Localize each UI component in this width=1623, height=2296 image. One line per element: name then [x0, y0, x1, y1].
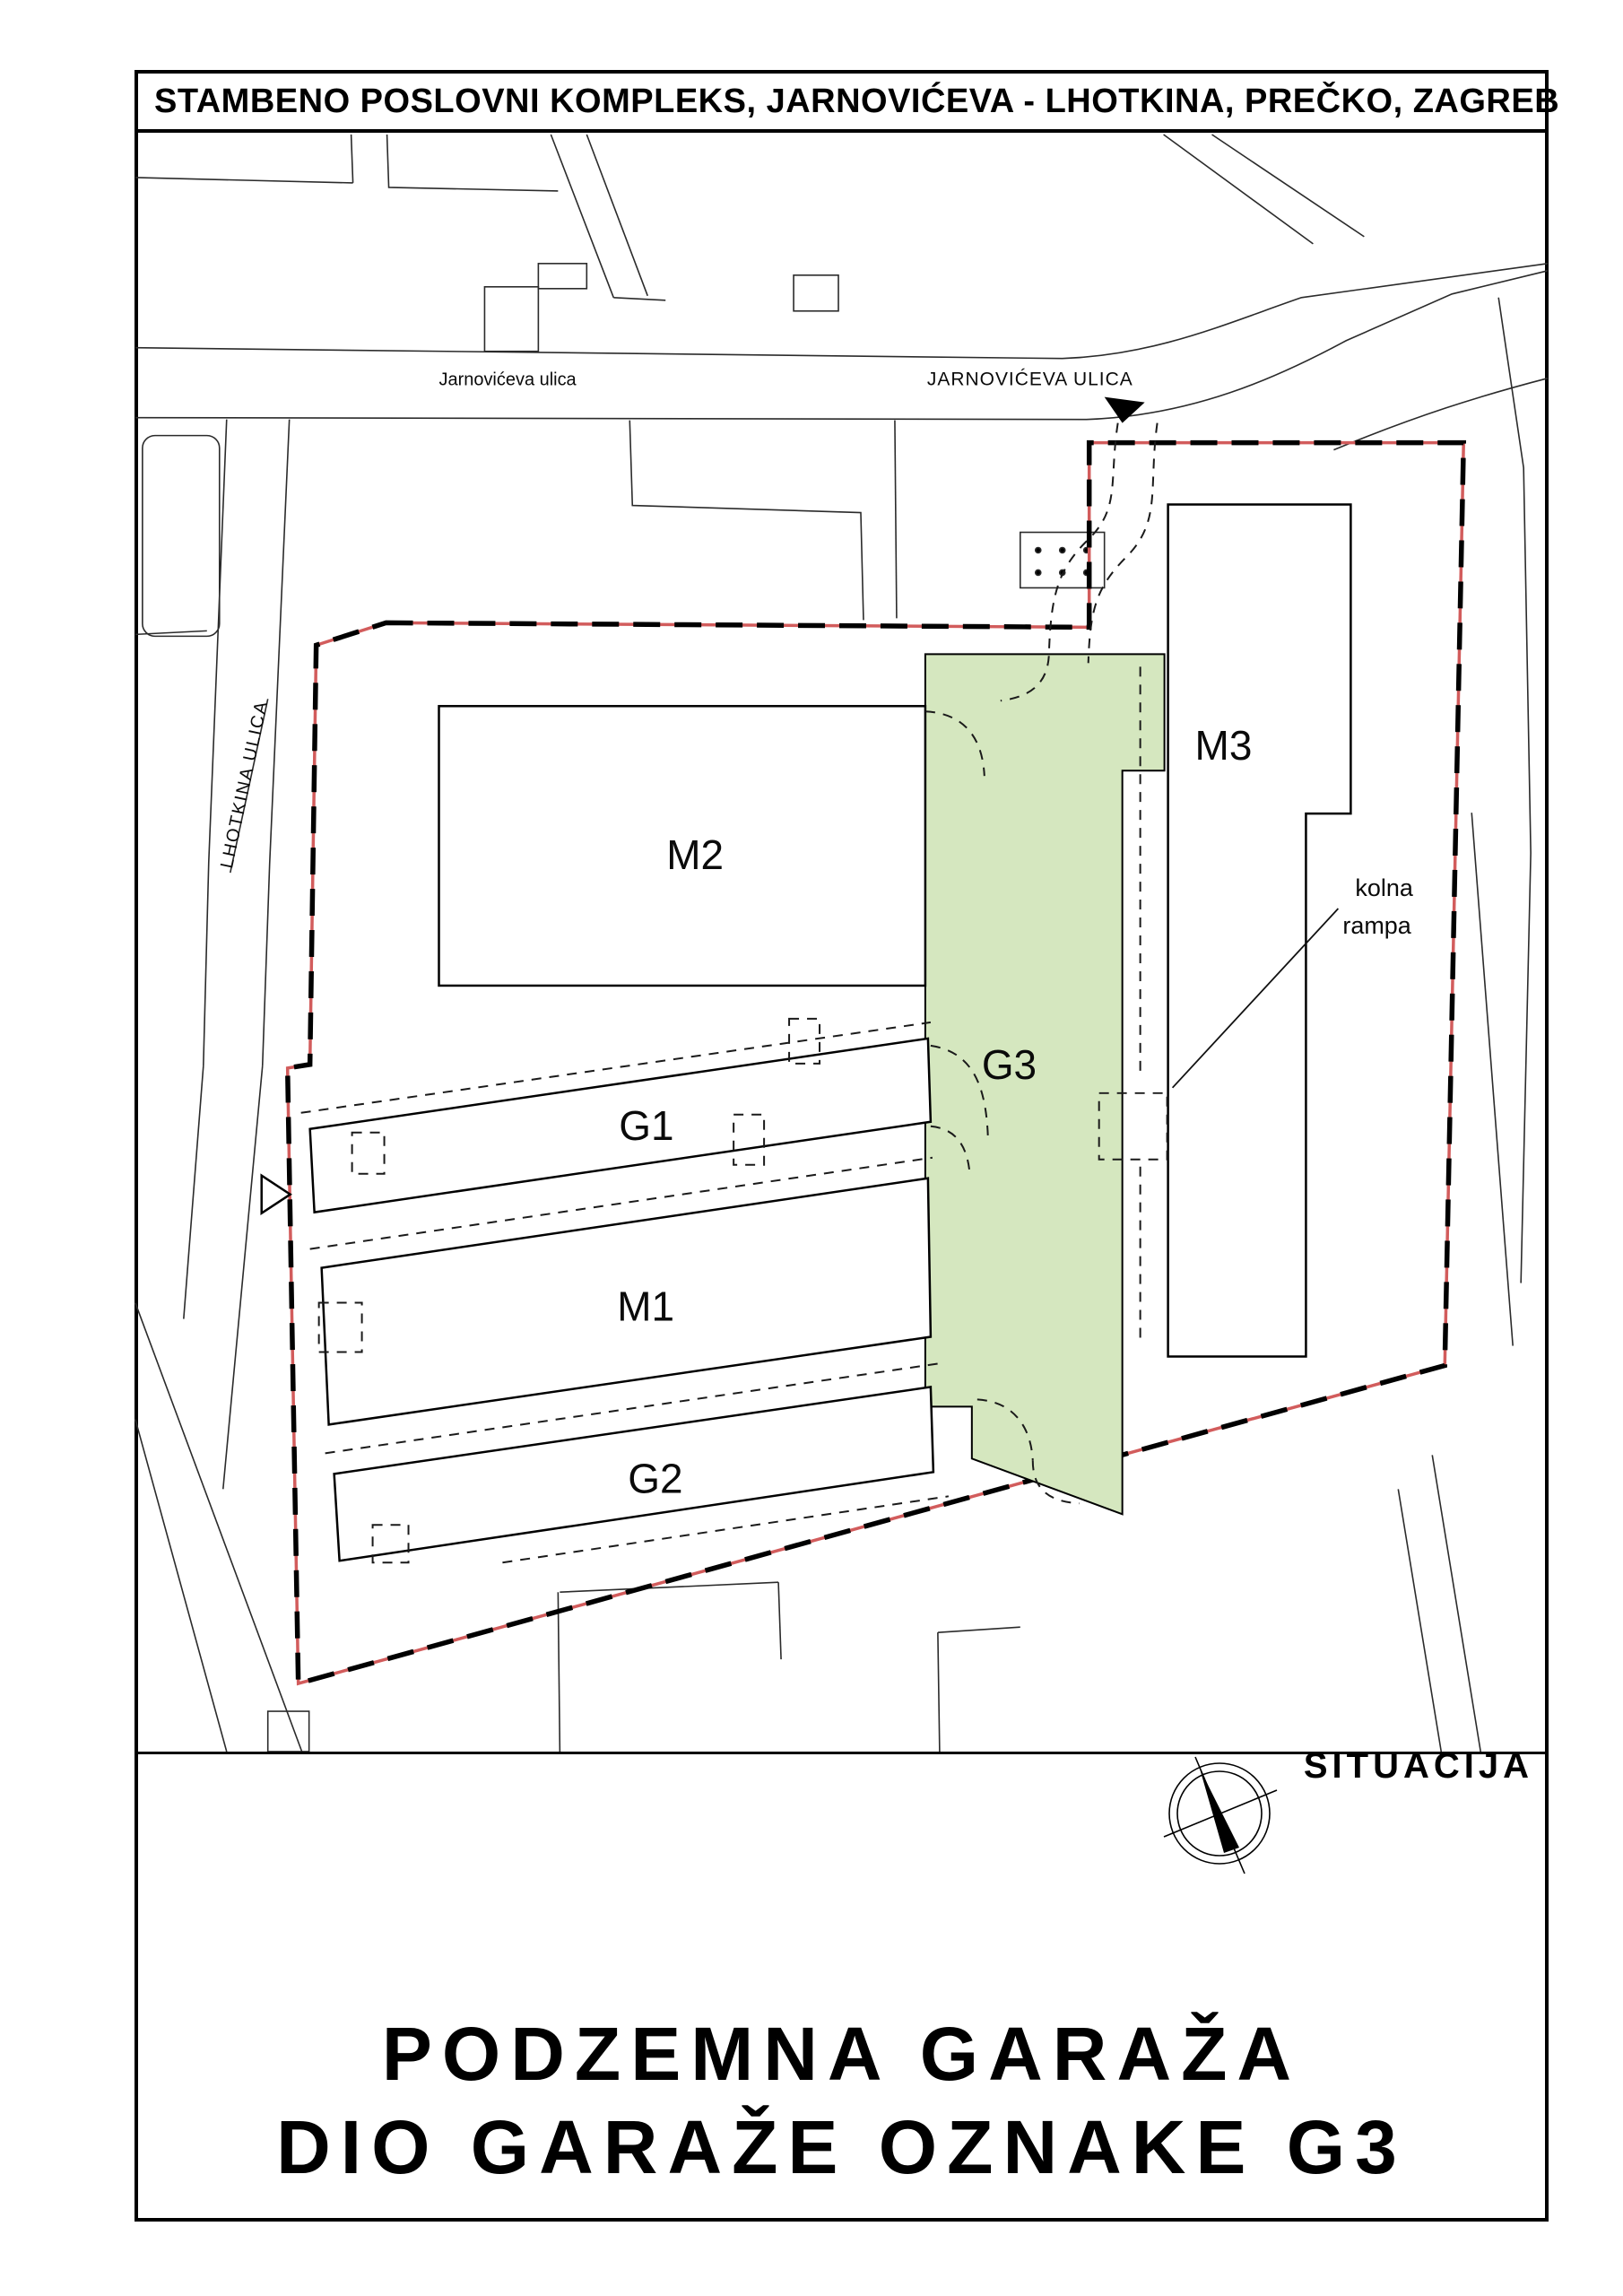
caption-block: PODZEMNA GARAŽA DIO GARAŽE OZNAKE G3 — [135, 2012, 1549, 2189]
label-building-g2: G2 — [628, 1455, 682, 1501]
caption-line-1: PODZEMNA GARAŽA — [135, 2012, 1549, 2096]
label-building-g1: G1 — [619, 1102, 673, 1149]
side-street-line — [184, 1066, 204, 1319]
side-street-line — [223, 1066, 263, 1489]
buildings — [310, 505, 1351, 1561]
entry-arrow-left — [262, 1176, 291, 1213]
utility-dot — [1060, 547, 1065, 552]
street-curb — [1498, 298, 1531, 1283]
label-building-m2: M2 — [666, 831, 724, 878]
parcel-line — [938, 1632, 940, 1752]
compass-needle — [1200, 1769, 1239, 1853]
label-building-m1: M1 — [617, 1283, 674, 1330]
street-line — [613, 298, 665, 300]
street-line — [135, 1419, 227, 1752]
street-line — [1398, 1489, 1441, 1752]
street-line — [1432, 1455, 1480, 1752]
building-m3-footprint — [1168, 505, 1351, 1357]
utility-structure — [1020, 533, 1105, 588]
utility-dot — [1036, 547, 1041, 552]
side-street-line — [263, 420, 290, 1066]
entry-arrow-top — [1105, 397, 1145, 423]
section-label: SITUACIJA — [135, 1746, 1533, 1787]
driveway-line — [629, 421, 864, 621]
parcel-line — [938, 1627, 1020, 1632]
label-building-m3: M3 — [1195, 722, 1253, 769]
street-line — [135, 178, 353, 183]
title-bar: STAMBENO POSLOVNI KOMPLEKS, JARNOVIĆEVA … — [135, 70, 1549, 133]
small-structure — [538, 264, 586, 289]
street-line — [586, 135, 647, 296]
drawing-title: STAMBENO POSLOVNI KOMPLEKS, JARNOVIĆEVA … — [154, 83, 1559, 121]
parcel-line — [560, 1582, 778, 1592]
utility-structure-outline — [1020, 533, 1105, 588]
street-line — [387, 135, 559, 191]
parcel-line — [558, 1592, 560, 1752]
utility-dot — [1036, 570, 1041, 575]
street-top-edge — [135, 264, 1548, 359]
street-line — [1164, 135, 1314, 244]
street-line — [551, 135, 613, 298]
parcel-line — [778, 1582, 781, 1659]
label-street-left: Jarnovićeva ulica — [438, 370, 577, 390]
compass-icon — [1162, 1754, 1280, 1876]
label-rampa: rampa — [1342, 912, 1410, 939]
street-line — [135, 1303, 302, 1752]
caption-line-2: DIO GARAŽE OZNAKE G3 — [135, 2105, 1549, 2189]
street-curb — [1471, 813, 1513, 1345]
garage-g3-area — [925, 654, 1165, 1514]
site-plan-map: M2 M3 G3 G1 M1 G2 Jarnovićeva ulica JARN… — [135, 133, 1549, 1752]
driveway-line — [895, 421, 897, 619]
side-street-line — [204, 420, 227, 1066]
label-kolna: kolna — [1355, 874, 1412, 901]
small-structure — [794, 275, 838, 311]
small-structure — [484, 287, 538, 352]
label-building-g3: G3 — [982, 1041, 1037, 1088]
label-street-side: LHOTKINA ULICA — [217, 699, 272, 870]
street-line — [352, 135, 353, 183]
street-line — [1212, 135, 1365, 237]
parking-bay — [143, 436, 220, 637]
label-street-right: JARNOVIĆEVA ULICA — [927, 370, 1133, 390]
